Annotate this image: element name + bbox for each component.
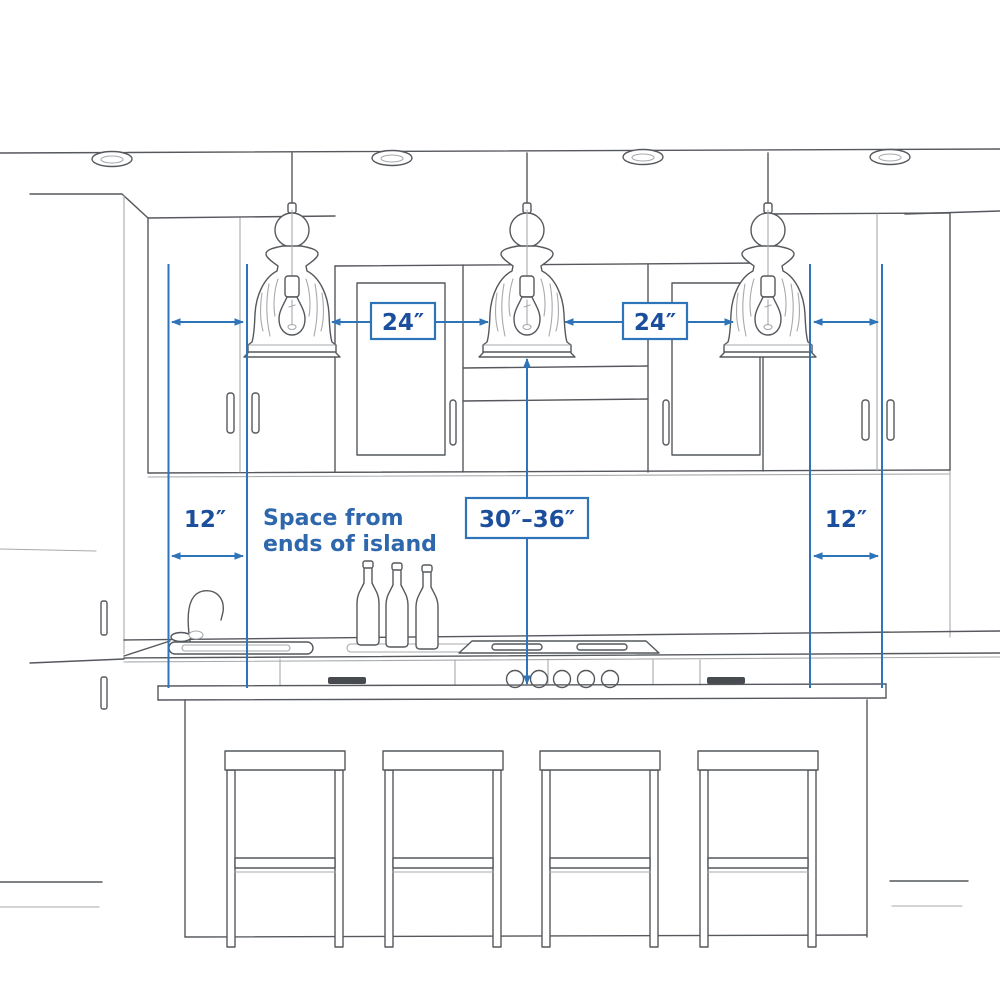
pendant-light-2 (479, 153, 575, 357)
pendant-spacing-left-label: 24″ (382, 310, 424, 336)
bar-stool-4 (698, 751, 818, 947)
cabinet-handle (101, 601, 107, 635)
wine-bottles (357, 561, 438, 649)
drawer-handle (707, 677, 745, 684)
recessed-light (92, 152, 132, 167)
cabinet-handle (101, 677, 107, 709)
bar-stool-1 (225, 751, 345, 947)
wall-left (0, 194, 148, 907)
wine-bottle (416, 565, 438, 649)
cabinet-handle (227, 393, 234, 433)
island-end-right-label: 12″ (825, 507, 867, 533)
drawer-handle (328, 677, 366, 684)
bar-stool-2 (383, 751, 503, 947)
bar-stool-3 (540, 751, 660, 947)
wine-bottle (357, 561, 379, 645)
cabinet-handle (450, 400, 456, 445)
wine-bottle (386, 563, 408, 647)
diagram-canvas: 24″ 24″ 30″–36″ 12″ 12″ Space from ends … (0, 0, 1000, 1000)
island-end-left-label: 12″ (184, 507, 226, 533)
note-space-from-ends: Space from ends of island (263, 506, 437, 557)
pendant-light-3 (720, 153, 816, 357)
faucet (171, 591, 223, 642)
recessed-light (372, 151, 412, 166)
pendant-light-1 (244, 153, 340, 357)
countertop (124, 561, 1000, 700)
cabinet-handle (887, 400, 894, 440)
pendant-spacing-right-label: 24″ (634, 310, 676, 336)
note-line-2: ends of island (263, 532, 437, 557)
recessed-light (623, 150, 663, 165)
wall-right (890, 211, 1000, 906)
recessed-light (870, 150, 910, 165)
cabinet-handle (862, 400, 869, 440)
counter-edge-band (158, 684, 886, 700)
kitchen-pendant-spacing-diagram: 24″ 24″ 30″–36″ 12″ 12″ Space from ends … (0, 0, 1000, 1000)
ceiling (0, 149, 1000, 167)
height-range-label: 30″–36″ (479, 507, 575, 533)
cabinet-left (148, 218, 259, 473)
cabinet-handle (663, 400, 669, 445)
note-line-1: Space from (263, 506, 404, 531)
cabinet-framed-left (335, 265, 463, 472)
cabinet-right (862, 213, 950, 471)
cooktop (459, 641, 659, 653)
counter-apron (280, 659, 745, 688)
cabinet-handle (252, 393, 259, 433)
island (185, 700, 867, 937)
